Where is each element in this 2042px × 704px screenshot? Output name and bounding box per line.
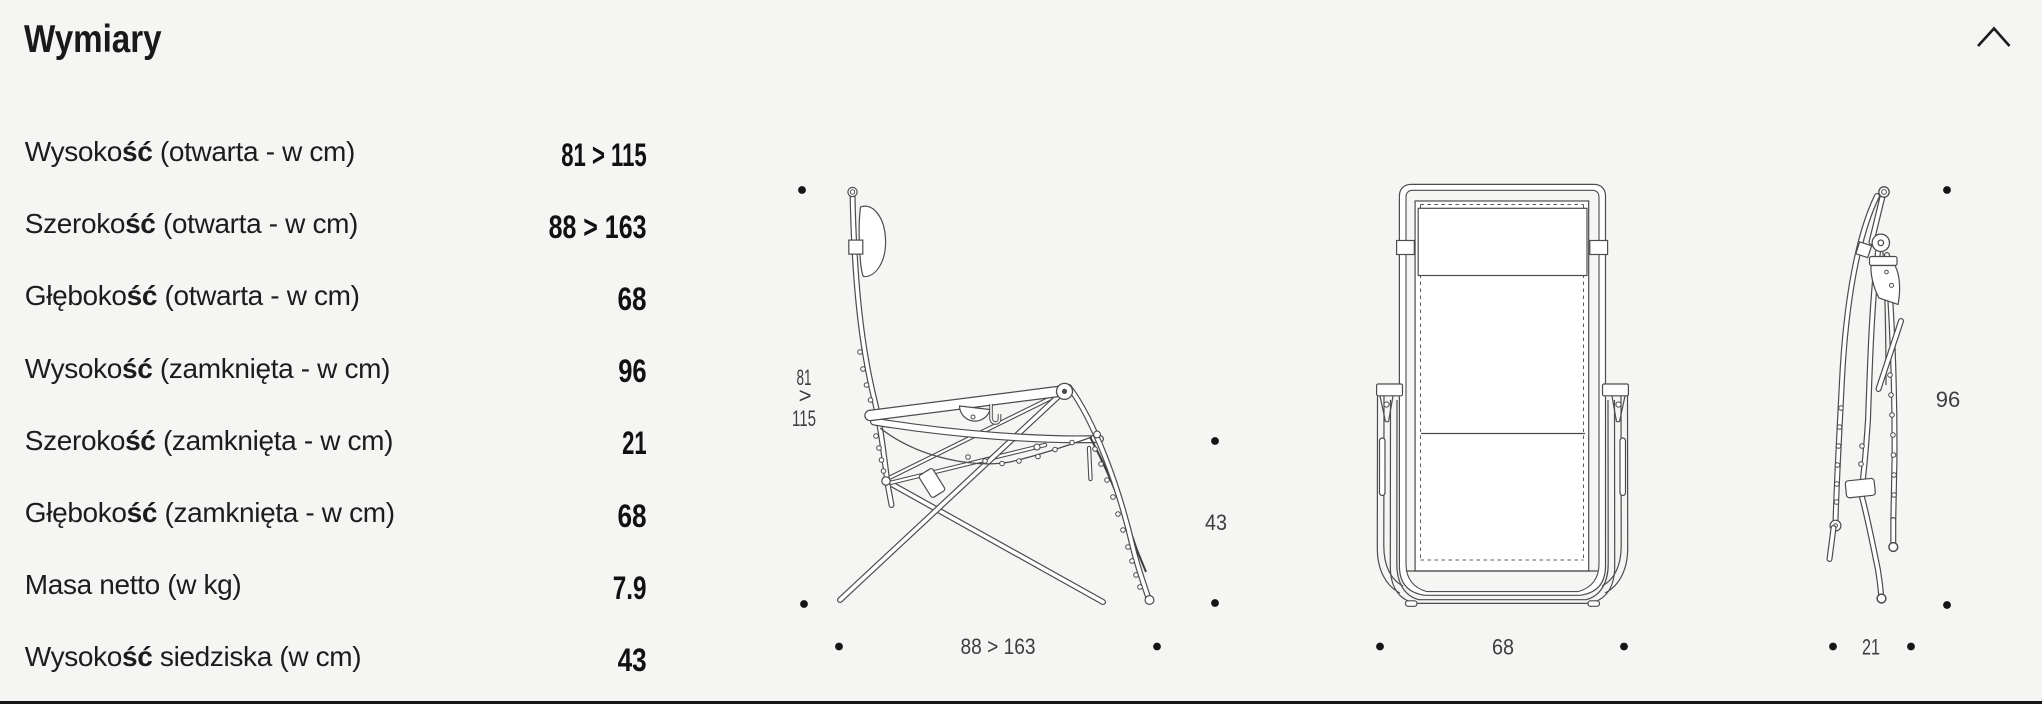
- svg-text:115: 115: [792, 406, 816, 431]
- svg-text:21: 21: [1862, 635, 1880, 660]
- svg-text:>: >: [799, 383, 812, 408]
- svg-text:68: 68: [1492, 635, 1514, 660]
- svg-text:88 > 163: 88 > 163: [961, 634, 1036, 659]
- svg-text:43: 43: [1205, 510, 1227, 535]
